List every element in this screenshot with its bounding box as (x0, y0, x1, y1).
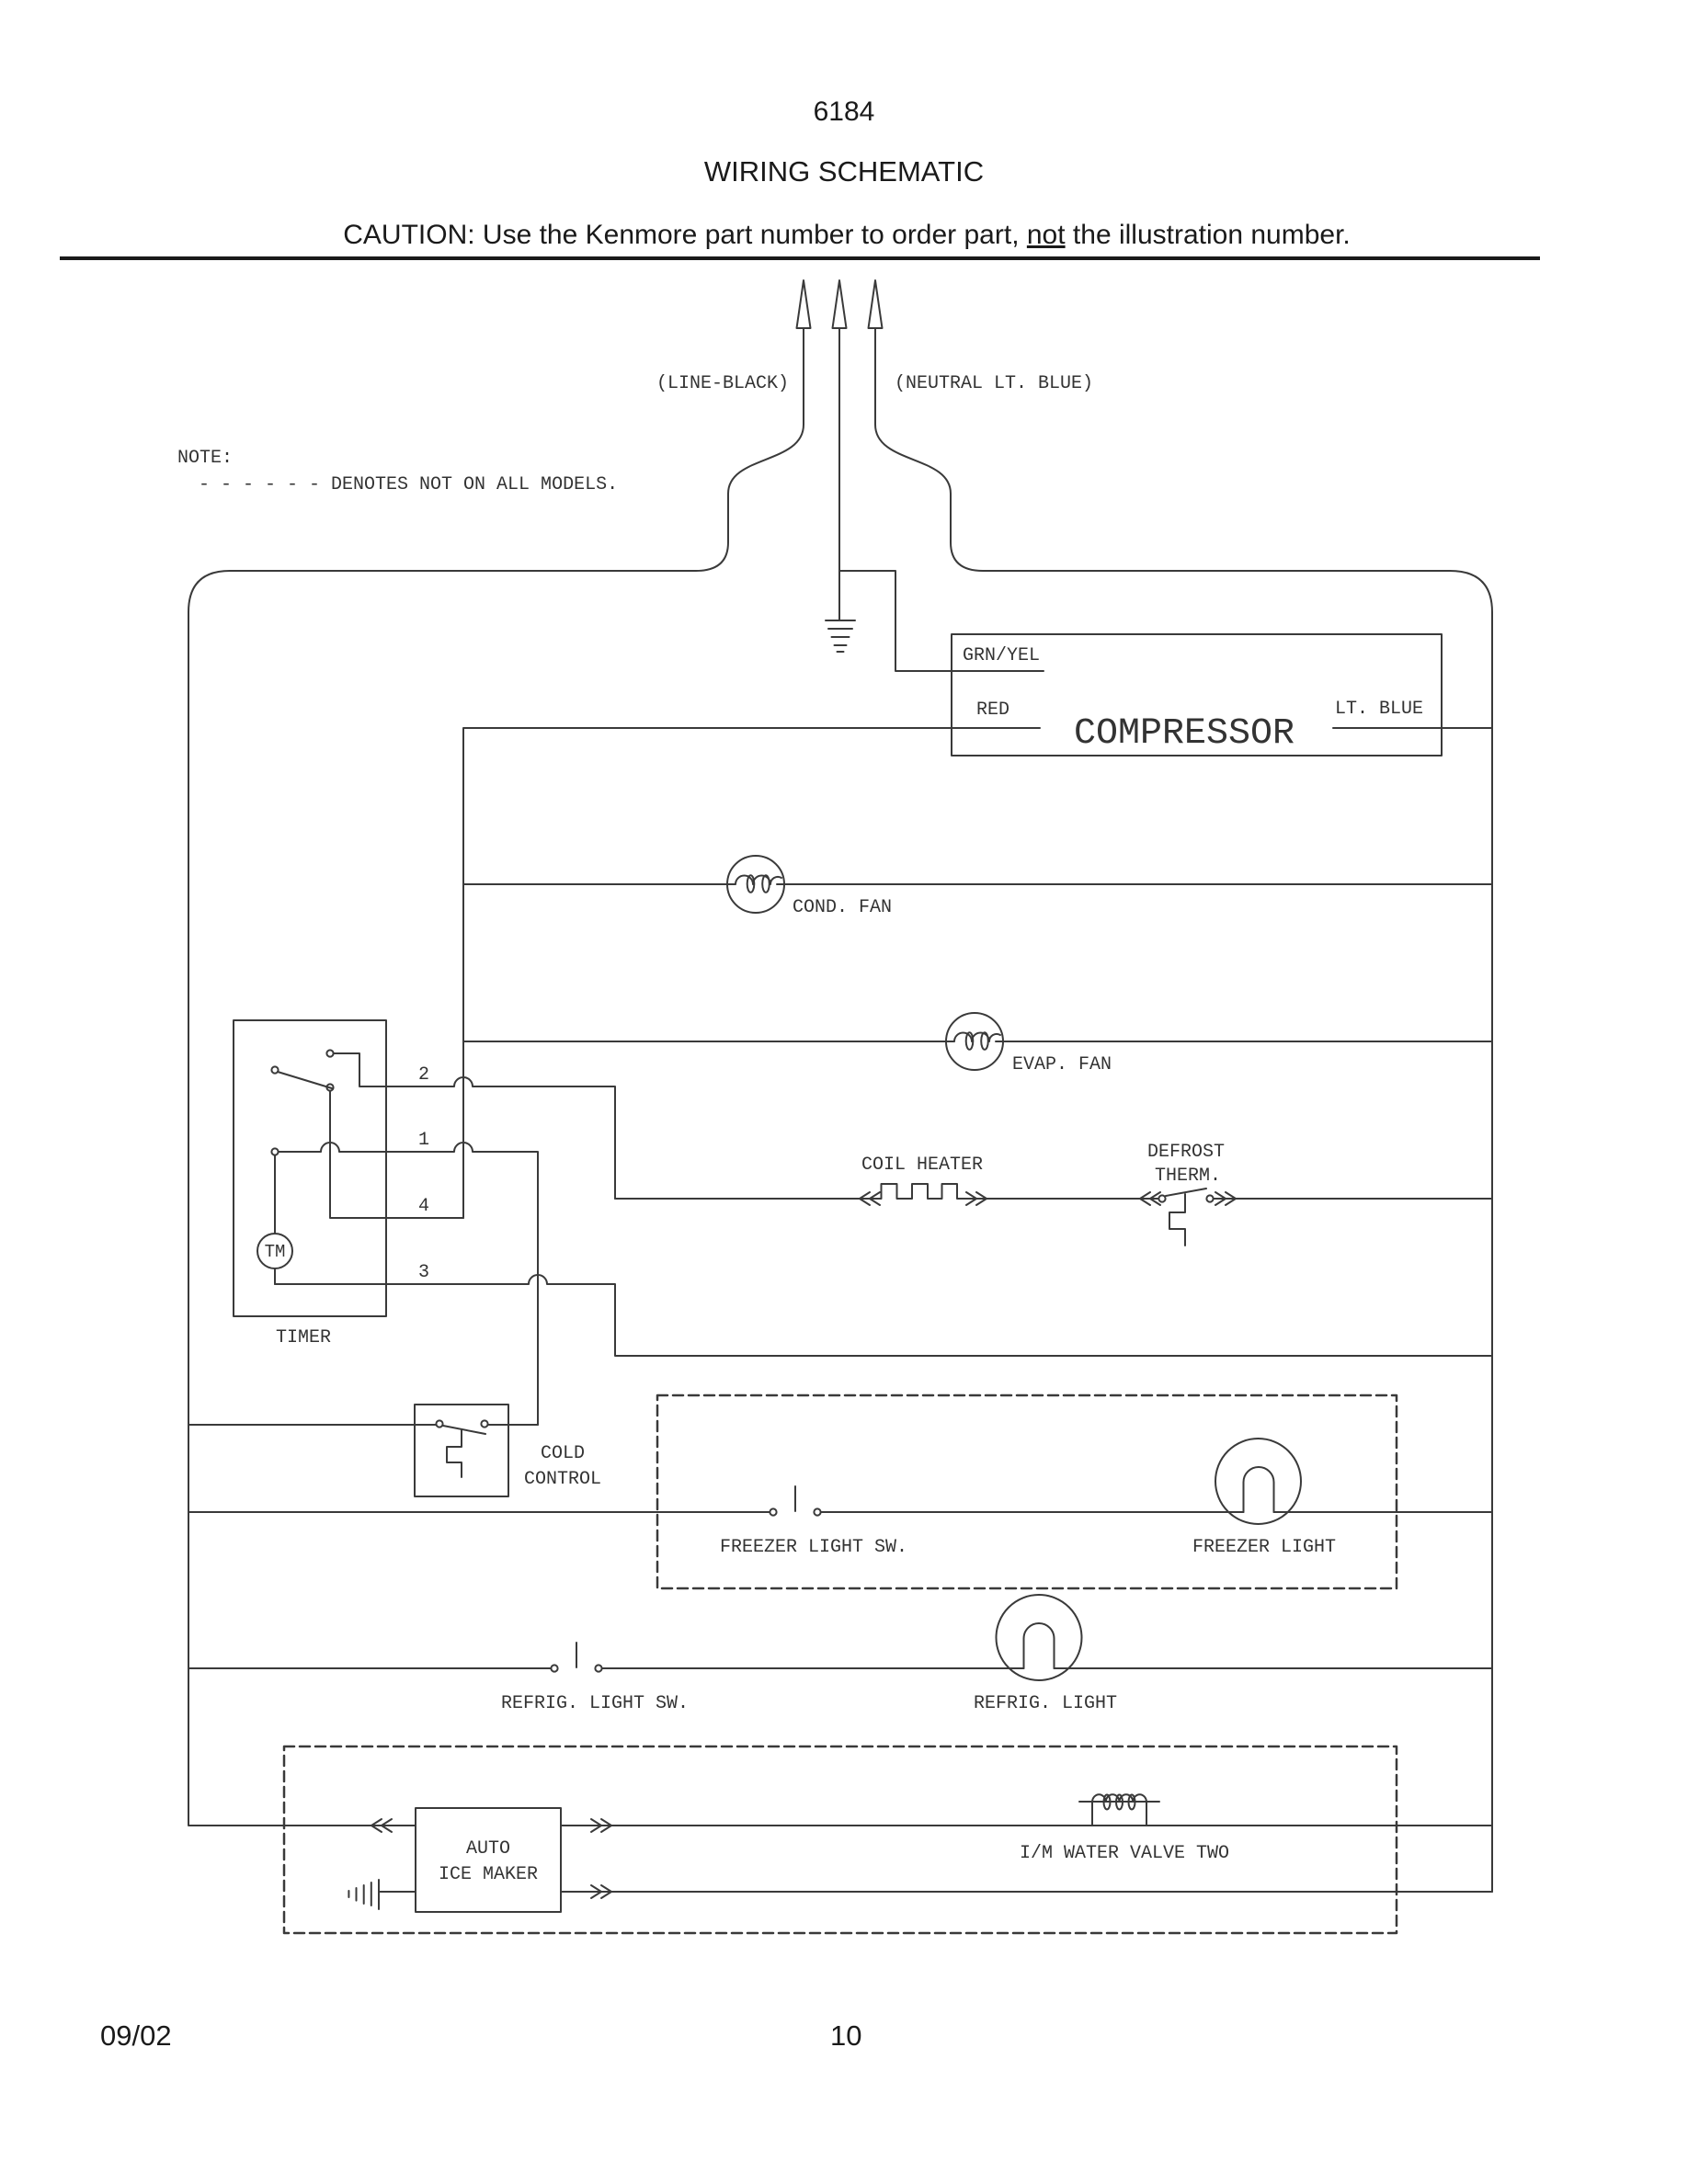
svg-text:COND. FAN: COND. FAN (793, 897, 892, 918)
svg-text:TM: TM (265, 1242, 286, 1262)
svg-text:COLD: COLD (541, 1443, 585, 1464)
svg-text:FREEZER LIGHT: FREEZER LIGHT (1192, 1537, 1336, 1558)
svg-text:COIL HEATER: COIL HEATER (861, 1155, 983, 1176)
svg-text:GRN/YEL: GRN/YEL (963, 645, 1040, 666)
svg-text:RED: RED (976, 700, 1009, 721)
svg-text:DEFROST: DEFROST (1147, 1142, 1225, 1163)
svg-text:CONTROL: CONTROL (524, 1469, 601, 1490)
svg-text:6184: 6184 (814, 97, 875, 127)
svg-text:FREEZER LIGHT SW.: FREEZER LIGHT SW. (720, 1537, 907, 1558)
svg-text:REFRIG. LIGHT: REFRIG. LIGHT (974, 1693, 1117, 1714)
svg-text:- - - - - - DENOTES NOT ON ALL: - - - - - - DENOTES NOT ON ALL MODELS. (199, 474, 618, 495)
svg-text:09/02: 09/02 (100, 2019, 172, 2052)
svg-text:1: 1 (418, 1130, 429, 1151)
svg-text:THERM.: THERM. (1155, 1166, 1221, 1187)
svg-text:LT. BLUE: LT. BLUE (1335, 699, 1423, 720)
svg-text:4: 4 (418, 1196, 429, 1217)
svg-text:ICE MAKER: ICE MAKER (439, 1864, 538, 1885)
svg-text:3: 3 (418, 1262, 429, 1283)
svg-text:REFRIG. LIGHT SW.: REFRIG. LIGHT SW. (501, 1693, 689, 1714)
svg-text:WIRING SCHEMATIC: WIRING SCHEMATIC (704, 155, 984, 188)
svg-text:(LINE-BLACK): (LINE-BLACK) (656, 373, 789, 394)
svg-text:AUTO: AUTO (466, 1838, 510, 1860)
svg-text:NOTE:: NOTE: (177, 448, 233, 469)
svg-text:I/M WATER VALVE TWO: I/M WATER VALVE TWO (1020, 1843, 1229, 1864)
svg-text:EVAP. FAN: EVAP. FAN (1012, 1054, 1112, 1075)
svg-text:(NEUTRAL LT. BLUE): (NEUTRAL LT. BLUE) (895, 373, 1093, 394)
svg-text:CAUTION: Use the Kenmore part: CAUTION: Use the Kenmore part number to … (343, 220, 1351, 250)
svg-text:COMPRESSOR: COMPRESSOR (1074, 713, 1295, 755)
svg-text:TIMER: TIMER (276, 1327, 331, 1348)
svg-text:10: 10 (830, 2019, 861, 2052)
svg-text:2: 2 (418, 1064, 429, 1086)
